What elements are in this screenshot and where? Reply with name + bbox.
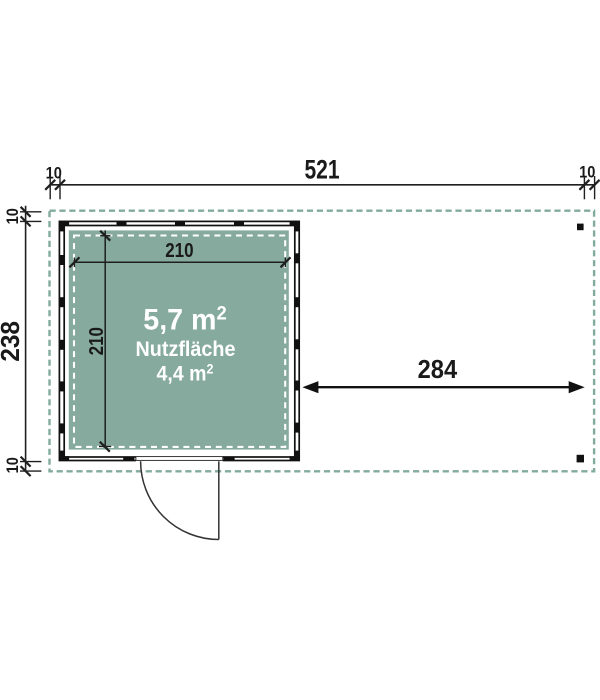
svg-text:10: 10 — [46, 164, 62, 182]
svg-text:5,7 m2: 5,7 m2 — [143, 302, 226, 336]
svg-text:10: 10 — [4, 457, 22, 473]
svg-text:284: 284 — [418, 356, 458, 384]
svg-text:Nutzfläche: Nutzfläche — [136, 337, 236, 361]
svg-text:10: 10 — [579, 163, 595, 181]
svg-text:4,4 m2: 4,4 m2 — [157, 361, 214, 386]
svg-text:521: 521 — [304, 155, 339, 185]
svg-text:238: 238 — [0, 321, 25, 362]
svg-text:210: 210 — [165, 239, 193, 262]
svg-text:10: 10 — [4, 208, 22, 224]
svg-text:210: 210 — [85, 327, 108, 355]
